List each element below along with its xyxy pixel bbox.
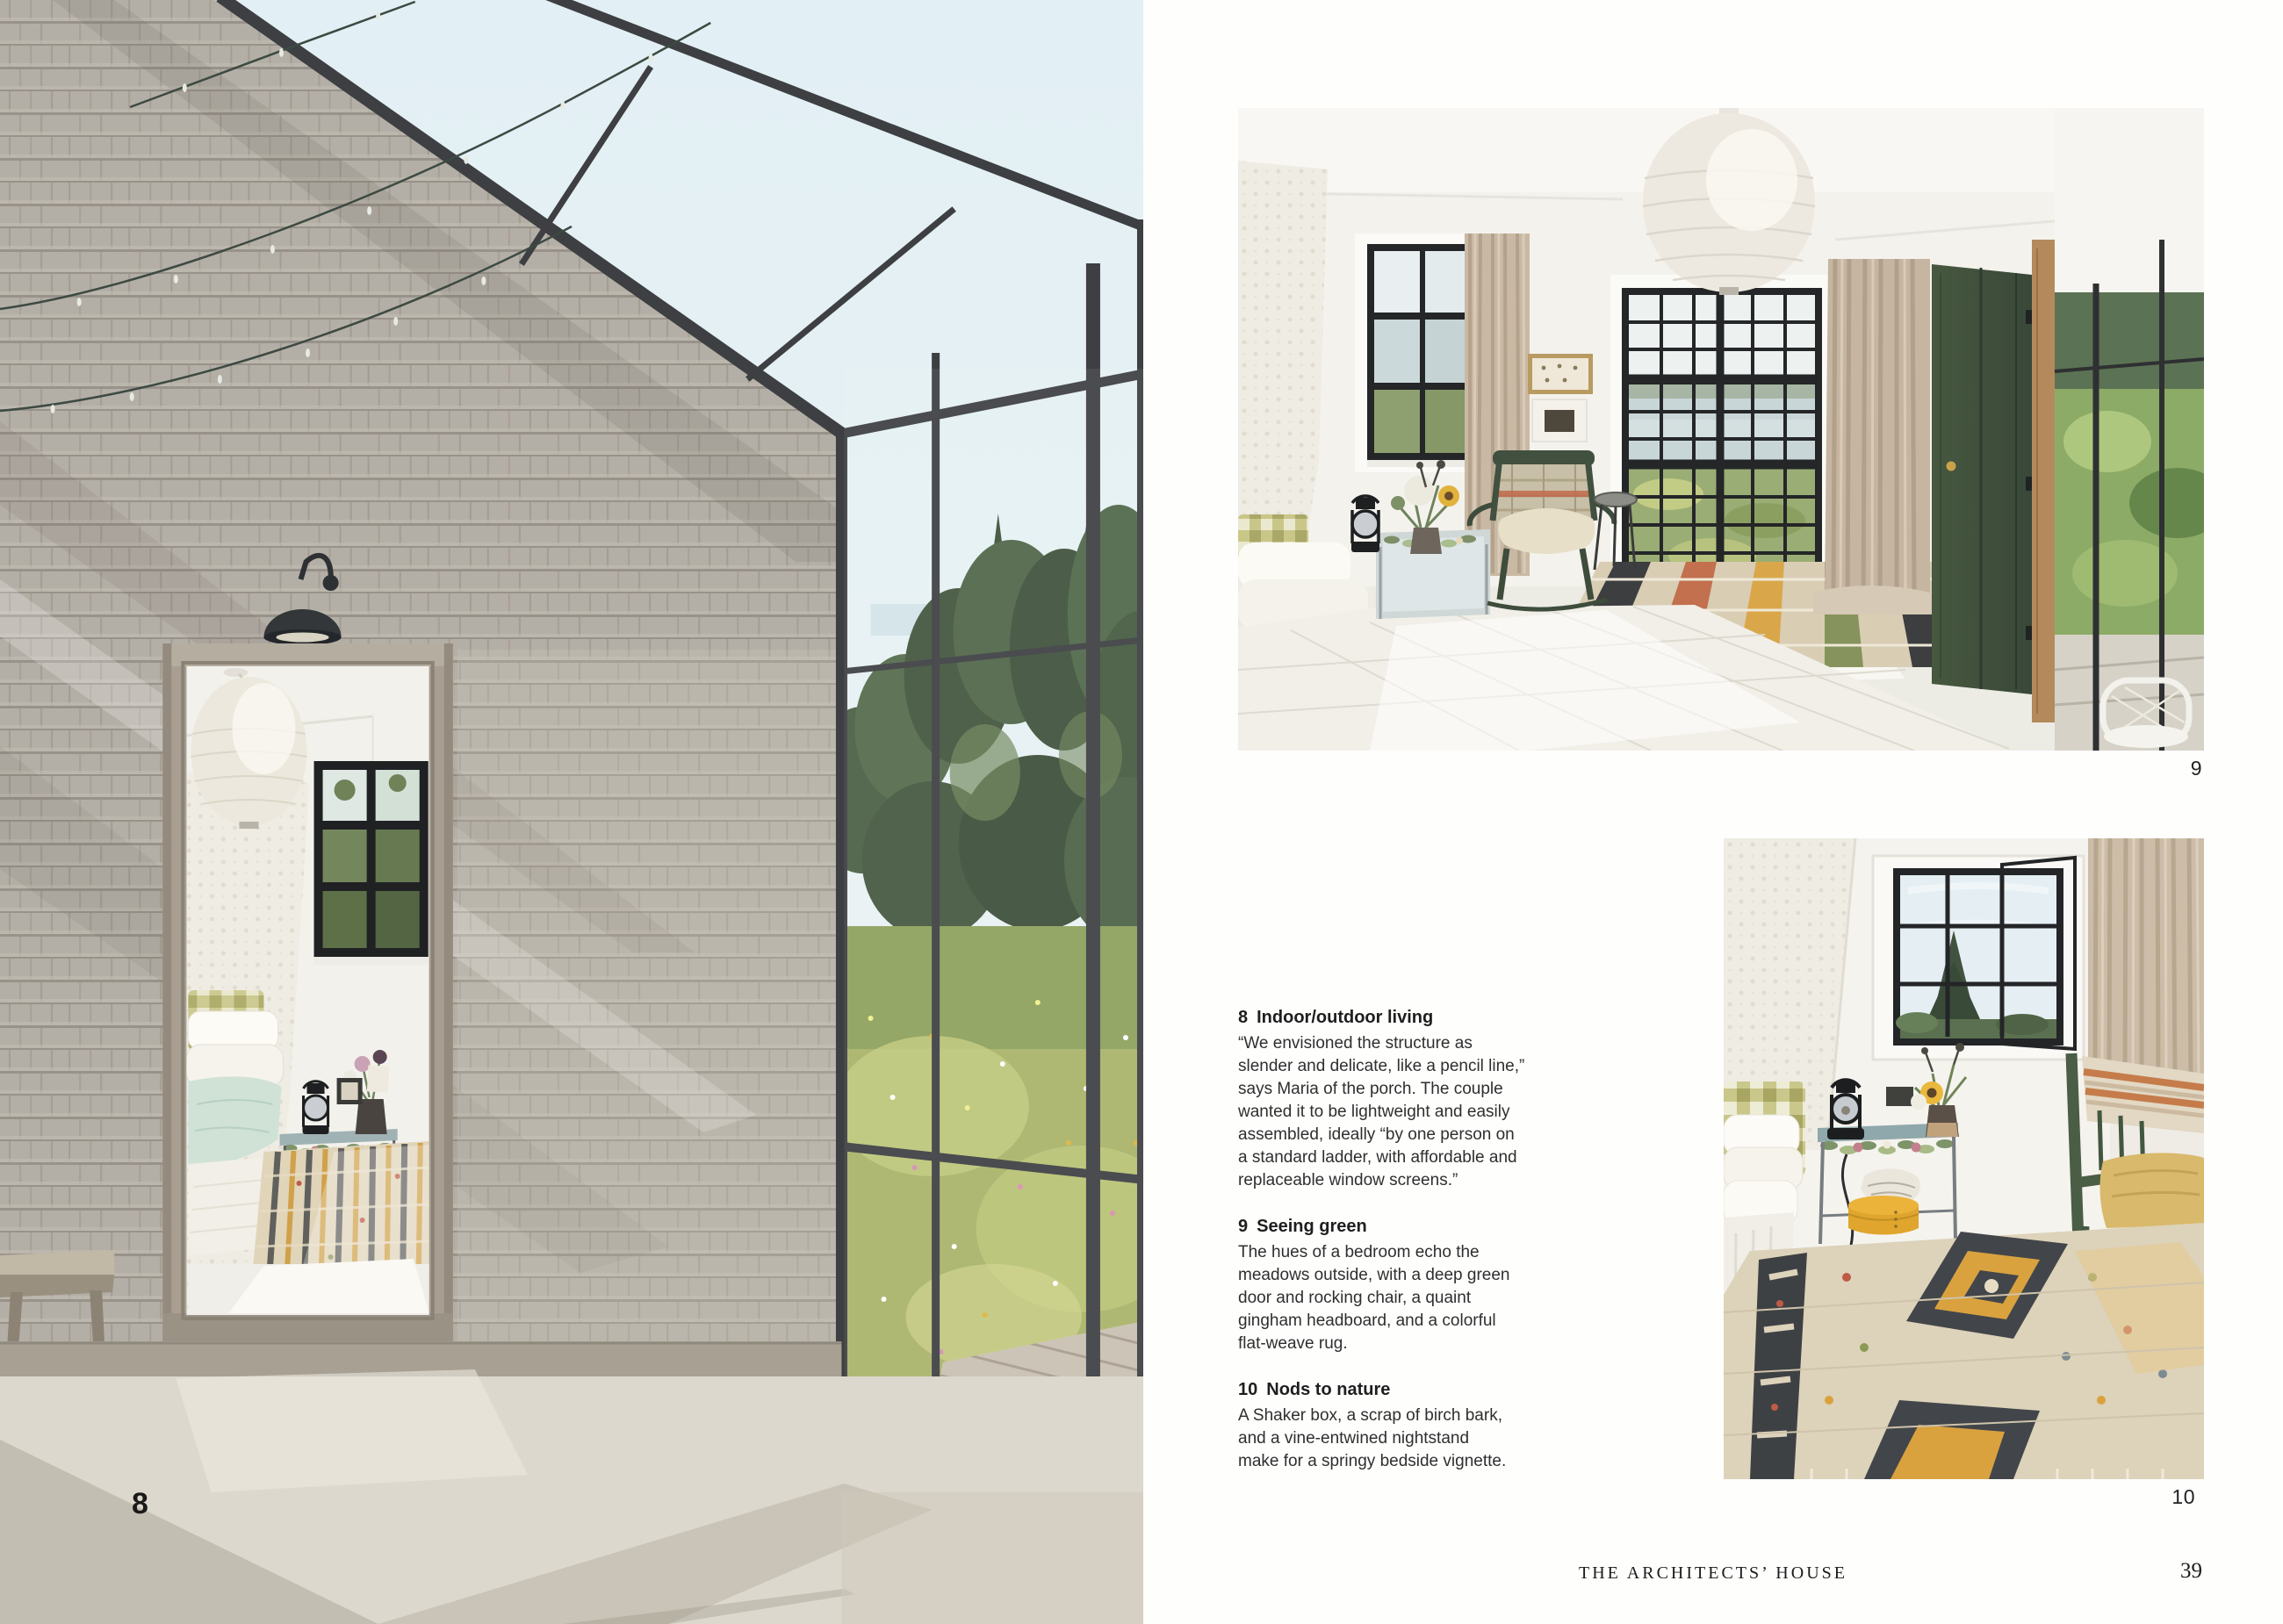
caption-8: 8Indoor/outdoor living “We envisioned th… [1238,1006,1624,1192]
caption-10-number: 10 [1238,1378,1257,1401]
doorway [162,643,453,1369]
caption-9-number: 9 [1238,1215,1248,1238]
exterior-porch-photo [0,0,1143,1624]
interior-window [314,761,429,965]
right-curtain [1813,259,1941,614]
window-screen [844,369,1143,1492]
shaker-box [1848,1196,1919,1235]
caption-9-heading: 9Seeing green [1238,1215,1624,1238]
left-page: 8 [0,0,1143,1624]
caption-8-title: Indoor/outdoor living [1257,1008,1433,1027]
running-footer-title: THE ARCHITECTS’ HOUSE [1143,1563,2283,1584]
caption-column: 8Indoor/outdoor living “We envisioned th… [1238,1006,1624,1496]
flatweave-rug [1724,1223,2204,1479]
curtain [2088,838,2204,1088]
steel-window-wall [1610,275,1833,594]
figure-number-9: 9 [2162,757,2202,780]
page-number: 39 [2180,1559,2202,1584]
green-door [1932,264,2033,694]
right-page: 9 [1143,0,2283,1624]
caption-10: 10Nods to nature A Shaker box, a scrap o… [1238,1378,1624,1473]
pillows [1724,1115,1803,1225]
caption-9-title: Seeing green [1257,1217,1367,1236]
caption-10-body: A Shaker box, a scrap of birch bark, and… [1238,1405,1624,1473]
figure-number-8: 8 [132,1487,148,1521]
figure-number-10: 10 [2150,1485,2195,1509]
caption-10-title: Nods to nature [1266,1380,1390,1399]
small-frame [1886,1087,1913,1106]
caption-9-body: The hues of a bedroom echo the meadows o… [1238,1241,1624,1355]
door-frame [2032,240,2055,722]
door-knob [1947,462,1956,471]
velvet-cushion [2100,1153,2204,1228]
sheepskin-cushion [1499,508,1595,554]
caption-8-heading: 8Indoor/outdoor living [1238,1006,1624,1029]
book-spread: 8 [0,0,2283,1624]
casement-window [1873,856,2084,1060]
porch-view [2055,108,2204,751]
bedroom-green-door-photo [1238,108,2204,751]
caption-8-number: 8 [1238,1006,1248,1029]
bedside-vignette-photo [1724,838,2204,1479]
caption-10-heading: 10Nods to nature [1238,1378,1624,1401]
caption-9: 9Seeing green The hues of a bedroom echo… [1238,1215,1624,1355]
concrete-floor [0,1341,1143,1624]
bedroom-interior-view [186,666,429,1369]
caption-8-body: “We envisioned the structure as slender … [1238,1032,1624,1192]
